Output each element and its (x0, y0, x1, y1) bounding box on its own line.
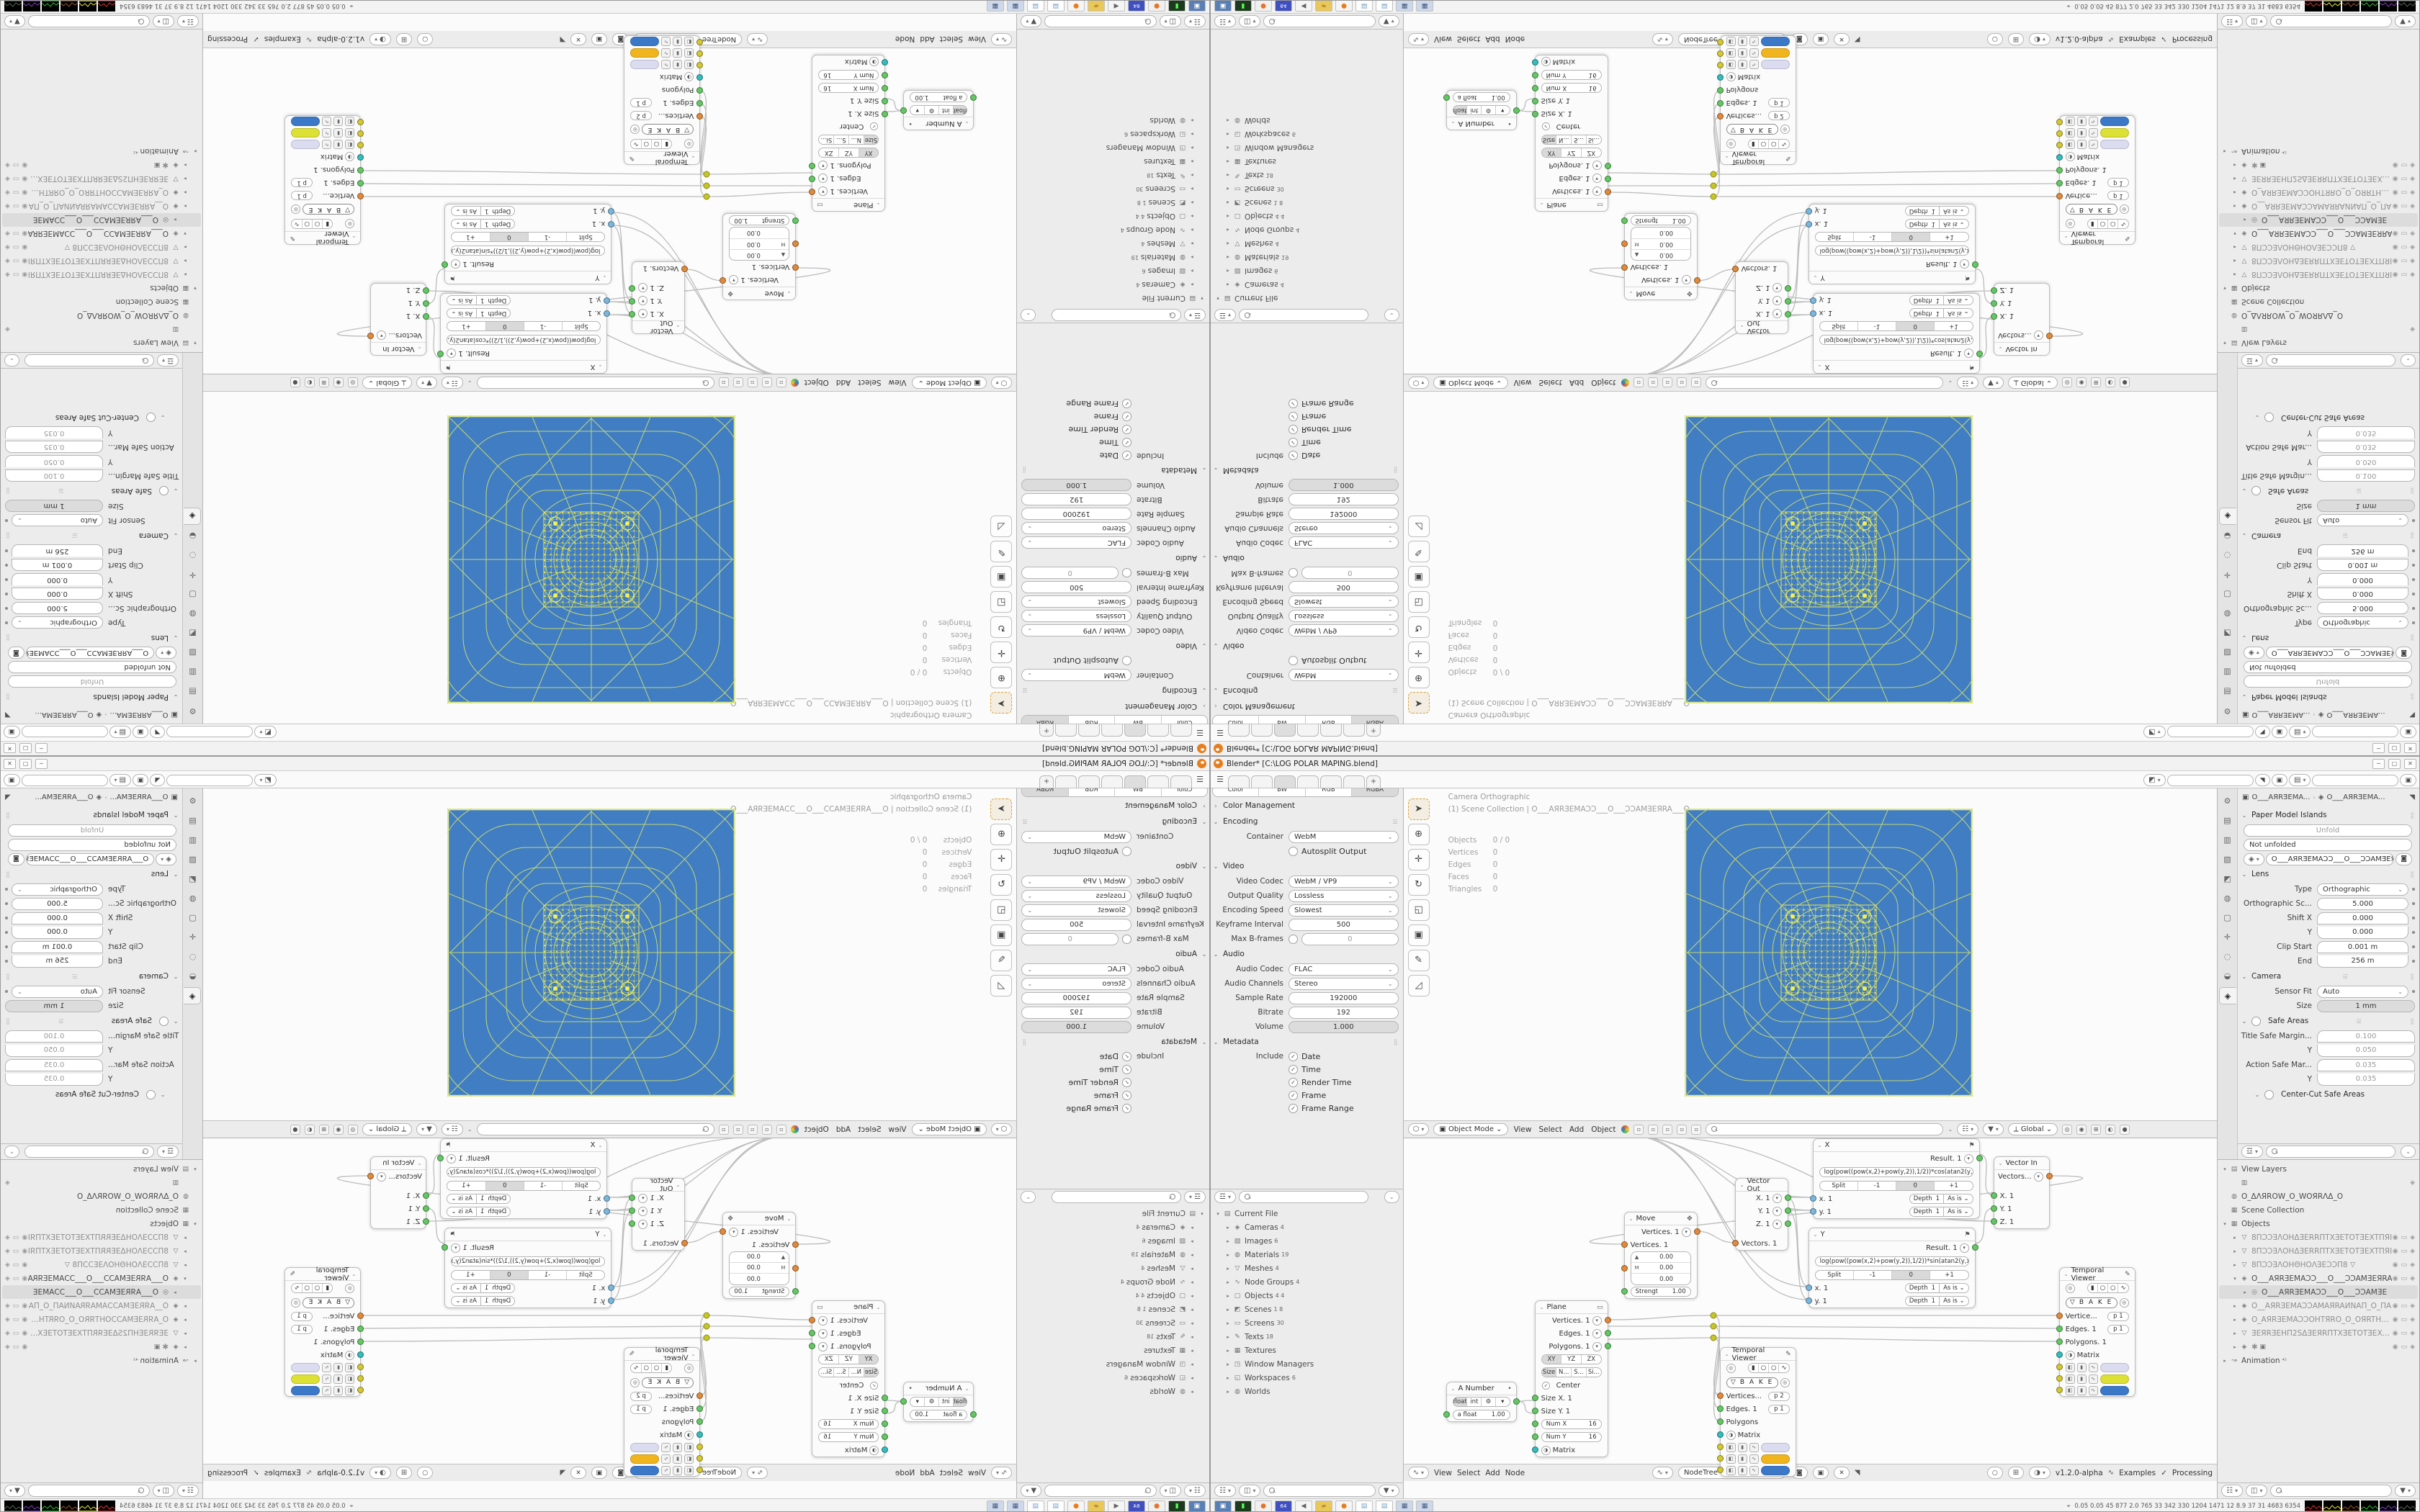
segment-button[interactable]: ▾ (1496, 1398, 1510, 1406)
filter-funnel-button[interactable]: ▼▾ (416, 1123, 437, 1135)
checkbox-frame-range[interactable]: ✓Frame Range (1021, 397, 1131, 410)
editor-type-button[interactable]: ◫▾ (1160, 15, 1181, 27)
copy-icon[interactable]: ▣ (1813, 1467, 1829, 1479)
filter-funnel-button[interactable]: ▼▾ (1983, 1123, 2004, 1135)
color-swatch[interactable] (630, 49, 659, 58)
checkbox-time[interactable]: ✓Time (1021, 1063, 1131, 1076)
taskbar-app-audio-player[interactable]: ◀ (1108, 1, 1125, 12)
hide-render-icon[interactable]: ◈ (5, 1330, 10, 1337)
dropdown-encoding-speed[interactable]: Slowest ⌄ (1021, 596, 1131, 608)
options-chevron[interactable]: ⌄ (4, 354, 19, 366)
outliner-row[interactable]: ▸▭Screens30 (1212, 1316, 1402, 1330)
color-depth-option[interactable]: RGBA (1352, 788, 1397, 796)
input-socket[interactable] (2056, 1313, 2063, 1319)
snap-proportional-icon[interactable]: ◎ (348, 1125, 358, 1135)
value-max-b-frames[interactable]: 0 (1301, 933, 1399, 945)
outliner-row[interactable]: ▸▽8ПƆƆƎΛOHΔƎERRПTXƎETOTƎEXTПЯI◉▭◈ (2, 1230, 201, 1244)
input-socket[interactable] (1621, 1288, 1628, 1295)
panel-header-paper-model-islands[interactable]: ⌄Paper Model Islands⣿ (5, 807, 179, 823)
socket-menu-button[interactable]: ▾ (377, 331, 386, 341)
taskbar-app-screen-capture[interactable]: ▣ (1188, 1500, 1206, 1512)
output-socket[interactable] (629, 1194, 635, 1201)
value-field[interactable]: Num X16 (1541, 83, 1602, 93)
formula-field[interactable]: log(pow((pow(x,2)+pow(y,2)),1/2))*sin(at… (1815, 1256, 1969, 1266)
workspace-tab[interactable] (1101, 724, 1123, 737)
fake-user-shield-icon[interactable]: ◙ (8, 853, 24, 865)
display-shape-icon[interactable]: ∿ (292, 1284, 301, 1292)
segment-button[interactable]: S... (1572, 135, 1587, 144)
value-clip-start[interactable]: 0.001 m (12, 941, 103, 953)
input-socket[interactable] (2056, 1375, 2063, 1382)
hide-viewport-icon[interactable]: ▭ (13, 1302, 19, 1310)
fake-user-shield-icon[interactable]: ◙ (8, 647, 24, 660)
output-socket[interactable] (809, 1330, 815, 1336)
outliner-row[interactable]: ▸◱Workspaces6 (1212, 1371, 1402, 1385)
search-input[interactable] (1263, 15, 1375, 27)
checkbox-frame[interactable]: ✓Frame (1289, 410, 1399, 423)
unfold-button[interactable]: Unfold (8, 676, 176, 688)
select-tool[interactable]: ➤ (990, 692, 1012, 714)
vector-out-node[interactable]: ⌄Vector OutX. 1▾Y. 1▾Z. 1▾Vectors. 1 (1735, 261, 1788, 334)
outliner-row[interactable]: ▸◈Cameras4 (1212, 1220, 1402, 1234)
properties-tab-physics[interactable]: ◌ (2219, 546, 2236, 564)
value-y[interactable]: 0.050 (2317, 1045, 2415, 1057)
breadcrumb-object[interactable]: O___AЯRƎEMA... (2251, 793, 2310, 801)
y-formula-node[interactable]: ⌄Y⚑Result. 1▾log(pow((pow(x,2)+pow(y,2))… (444, 204, 611, 284)
segment-button[interactable]: int (1467, 106, 1482, 114)
hide-render-icon[interactable]: ◈ (5, 203, 10, 210)
hide-viewport-icon[interactable]: ▭ (13, 258, 19, 265)
hide-render-icon[interactable]: ◈ (5, 176, 10, 183)
display-shape-icon[interactable]: ▮ (322, 1284, 332, 1292)
output-socket[interactable] (1694, 277, 1700, 284)
outliner-row[interactable]: ▸▽ƎEЯRƎEHП2SΔƎEЯRПTXƎETOTƎEXTПS◉▭◈ (2219, 172, 2418, 186)
node-editor[interactable]: ∿▾ViewSelectAddNode∿▾NodeTree◙▣✕◥○⊞◑▾v1.… (203, 1138, 1016, 1481)
camera-data-name-field[interactable]: O___AЯRƎEMAƆƆ___O___ƆƆAMƎEЯRA___O (2266, 853, 2395, 865)
visibility-icon[interactable]: ◎ (684, 1364, 694, 1373)
outliner-row[interactable]: ▸▽Meshes4 (1018, 237, 1208, 251)
output-socket[interactable] (1605, 1330, 1611, 1336)
properties-tab-modifiers[interactable]: ✛ (2219, 929, 2236, 946)
copy-icon[interactable]: ▣ (2272, 774, 2288, 786)
display-shape-icon[interactable]: ○ (651, 1364, 661, 1372)
filter-button[interactable]: ▼▾ (4, 1485, 25, 1497)
output-socket[interactable] (809, 176, 815, 182)
pin-icon[interactable]: ◥ (2409, 711, 2415, 719)
hide-eye-icon[interactable]: ◉ (2393, 1248, 2398, 1255)
camera-data-name-field[interactable]: O___AЯRƎEMAƆƆ___O___ƆƆAMƎEЯRA___O (26, 853, 155, 865)
socket-menu-button[interactable]: ▾ (818, 1329, 828, 1338)
hide-render-icon[interactable]: ◈ (5, 1316, 10, 1323)
outliner-row[interactable]: ▸◍Materials19 (1212, 1248, 1402, 1261)
annotate-tool[interactable]: ✎ (990, 541, 1012, 562)
panel-header-center-cut-safe-areas[interactable]: ⌄Center-Cut Safe Areas (2241, 410, 2415, 426)
render-camera-icon[interactable]: ◈ (2410, 326, 2415, 333)
taskbar-app-notepad-1[interactable]: ▤ (1047, 1500, 1065, 1512)
search-input[interactable] (1706, 377, 1943, 389)
shading-icon[interactable]: ◑▾ (2029, 33, 2051, 45)
search-input[interactable] (2266, 1146, 2396, 1158)
properties-tab-modifiers[interactable]: ✛ (184, 566, 202, 583)
properties-tab-constraints[interactable]: ◒ (2219, 968, 2236, 985)
menu-select[interactable]: Select (1457, 1469, 1480, 1477)
hide-viewport-icon[interactable]: ▭ (13, 271, 19, 279)
hide-render-icon[interactable]: ◈ (2410, 1248, 2415, 1255)
hide-viewport-icon[interactable]: ▭ (13, 189, 19, 197)
segment-button[interactable]: 0 (485, 322, 524, 330)
outliner-row[interactable]: ▸◈O_AЯRƎEMAƆƆOHTЯRO_O_OЯRTHOƆƆI◉▭◈ (2219, 1313, 2418, 1326)
display-shape-icon[interactable]: ○ (2108, 1284, 2118, 1292)
segment-button[interactable]: 0 (485, 1182, 524, 1190)
outliner-row[interactable]: ▸↝Animation⁴² (2, 145, 201, 158)
socket-menu-button[interactable]: ▾ (1773, 284, 1782, 293)
new-view-layer-icon[interactable]: ▣ (2400, 726, 2416, 738)
snap-icon[interactable]: ○ (1987, 1467, 2003, 1479)
hide-eye-icon[interactable]: ◉ (22, 176, 27, 183)
socket-menu-button[interactable]: ▾ (1682, 276, 1691, 285)
annotate-tool[interactable]: ✎ (990, 950, 1012, 971)
orientation-dropdown[interactable]: ⟂ Global ⌄ (362, 1123, 412, 1135)
checkbox-label[interactable]: Center (1556, 123, 1581, 131)
formula-field[interactable]: log(pow((pow(x,2)+pow(y,2)),1/2))*cos(at… (1819, 335, 1973, 345)
properties-tab-output[interactable]: ▥ (2219, 663, 2236, 680)
display-shape-icon[interactable]: ▮ (1749, 140, 1759, 148)
outliner-row[interactable]: ▾◈O___AЯRƎEMAƆƆ___O___ƆƆAMƎEЯRA◉▭◈ (2219, 227, 2418, 240)
snap-proportional-icon[interactable]: ● (2120, 1125, 2130, 1135)
menu-select[interactable]: Select (1537, 1125, 1563, 1134)
display-mode-button[interactable]: ☷▾ (2221, 15, 2243, 27)
menu-view[interactable]: View (968, 1469, 986, 1477)
color-swatch[interactable] (630, 1454, 659, 1464)
taskbar-app-calculator-1[interactable]: ▦ (1396, 1500, 1413, 1512)
taskbar-app-firefox[interactable]: ● (1255, 1, 1272, 12)
hide-render-icon[interactable]: ◈ (5, 1344, 10, 1351)
dropdown-audio-channels[interactable]: Stereo ⌄ (1021, 978, 1131, 990)
taskbar-app-screen-recorder[interactable]: ▮ (1168, 1, 1186, 12)
segment-button[interactable]: ⚙ (1482, 1398, 1496, 1406)
value-field[interactable]: Strengt1.00 (1631, 1287, 1691, 1297)
filter-funnel-button[interactable]: ▼▾ (416, 377, 437, 389)
overlay-list-button[interactable]: ☷▾ (442, 377, 463, 389)
view-layer-selector[interactable]: ▤▾ ▣ (4, 774, 131, 786)
scene-selector[interactable]: ◩▾ ◥ ▣ (133, 774, 277, 786)
outliner-row[interactable]: ▸◍Worlds (1212, 1385, 1402, 1398)
value-max-b-frames[interactable]: 0 (1021, 567, 1119, 580)
hide-eye-icon[interactable]: ◉ (22, 271, 27, 279)
taskbar-app-calculator-2[interactable]: ▦ (1416, 1500, 1433, 1512)
output-socket[interactable] (720, 1228, 726, 1235)
hide-eye-icon[interactable]: ◉ (2393, 1261, 2398, 1269)
segment-button[interactable]: ⚙ (1482, 106, 1496, 114)
taskbar-app-calculator-1[interactable]: ▦ (1007, 1, 1024, 12)
outliner-row[interactable]: ▸∿Node Groups4 (1212, 1275, 1402, 1289)
value-field[interactable]: a float1.00 (910, 1410, 967, 1420)
minimize-button[interactable]: ─ (35, 759, 48, 769)
output-socket[interactable] (629, 1220, 635, 1227)
camera-data-icon[interactable]: ◈▾ (156, 647, 176, 660)
outliner-row[interactable]: ▸◈O_AЯRƎEMAƆƆOHTЯRO_O_OЯRTHOƆƆI◉▭◈ (2, 1313, 201, 1326)
outliner-row[interactable]: ▸▽Meshes4 (1212, 237, 1402, 251)
properties-tab-render[interactable]: ▤ (184, 683, 202, 700)
input-socket[interactable] (1810, 310, 1816, 317)
color-depth-option[interactable]: RGBA (1022, 716, 1067, 724)
dropdown-video-codec[interactable]: WebM / VP9 ⌄ (1289, 876, 1399, 888)
unfold-button[interactable]: Unfold (2244, 824, 2412, 837)
new-view-layer-icon[interactable]: ▣ (2400, 774, 2416, 786)
panel-header-metadata[interactable]: ⌄Metadata⣿ (1212, 1034, 1399, 1050)
segment-button[interactable]: -1 (1858, 1182, 1896, 1190)
panel-header-paper-model-islands[interactable]: ⌄Paper Model Islands⣿ (2241, 689, 2415, 705)
socket-menu-button[interactable]: ▾ (1960, 1243, 1969, 1253)
panel-header-audio[interactable]: ⌄Audio (1021, 550, 1208, 566)
select-mode-icon[interactable]: ▫ (1633, 1125, 1644, 1135)
maximize-button[interactable]: ▢ (2388, 759, 2401, 769)
color-swatch[interactable] (630, 37, 659, 47)
outliner-row[interactable]: ▥◈ (2, 1176, 201, 1189)
transform-tool[interactable]: ▣ (1408, 566, 1430, 588)
outliner-row[interactable]: ▾▦Objects (2219, 282, 2418, 295)
hide-render-icon[interactable]: ◈ (2410, 1261, 2415, 1269)
mode-dropdown[interactable]: ▣ Object Mode ⌄ (1433, 377, 1507, 389)
taskbar-app-screen-recorder[interactable]: ▮ (1234, 1, 1252, 12)
search-input[interactable] (477, 377, 714, 389)
color-swatch[interactable] (2100, 129, 2129, 138)
color-depth-option[interactable]: Color (1161, 716, 1207, 724)
chevron-down-icon[interactable]: ⌄ (467, 379, 472, 386)
display-mode-button[interactable]: ☷▾ (1184, 1485, 1206, 1497)
shading-icon[interactable]: ◑▾ (369, 1467, 391, 1479)
dropdown-output-quality[interactable]: Lossless ⌄ (1289, 890, 1399, 902)
outliner-row[interactable]: ▸▽8ПƆƆƎΛOHΔƎERRПTXƎETOTƎEXTПЯI◉▭◈ (2, 254, 201, 268)
checkbox-time[interactable]: ✓Time (1289, 436, 1399, 449)
output-socket[interactable] (629, 311, 635, 318)
input-socket[interactable] (2056, 154, 2063, 161)
properties-tab-object[interactable]: ▢ (184, 585, 202, 603)
temporal-viewer-node-center[interactable]: ⌄Temporal Viewer✎◎ ▮○○∿▽B A K E◎Vertices… (624, 1347, 700, 1477)
input-socket[interactable] (1806, 1284, 1812, 1291)
pin-icon[interactable]: ◥ (151, 774, 166, 786)
value-field[interactable]: Num Y16 (818, 1432, 879, 1442)
overlay-icon[interactable]: ⊞ (396, 1467, 412, 1479)
outliner-row[interactable]: ▸▽8ПƆƆƎΛOHΔƎERRПTXƎETOTƎEXTПЯI◉▭◈ (2, 1244, 201, 1258)
dropdown-type[interactable]: Orthographic ⌄ (12, 617, 103, 629)
outliner-row[interactable]: ▸◎O___AЯRƎEMAƆƆ___O___ƆƆAMƎE (2219, 1285, 2418, 1299)
outliner-row[interactable]: ▥◈ (2, 323, 201, 336)
hide-eye-icon[interactable]: ◉ (22, 1261, 27, 1269)
node-editor[interactable]: ∿▾ViewSelectAddNode∿▾NodeTree◙▣✕◥○⊞◑▾v1.… (203, 31, 1016, 374)
color-swatch[interactable] (630, 1443, 659, 1452)
value-keyframe-interval[interactable]: 500 (1021, 582, 1131, 594)
outliner-row[interactable]: ▸◩Scenes1 8 (1212, 196, 1402, 210)
color-depth-option[interactable]: Color (1161, 788, 1207, 796)
outliner-row[interactable]: ▾▤View Layers (2, 1162, 201, 1176)
workspace-tab[interactable] (1055, 724, 1077, 737)
socket-menu-button[interactable]: ▾ (1682, 1228, 1691, 1237)
select-mode-icon[interactable]: ▫ (762, 378, 772, 388)
panel-header-center-cut-safe-areas[interactable]: ⌄Center-Cut Safe Areas (5, 410, 179, 426)
dropdown-type[interactable]: Orthographic ⌄ (12, 883, 103, 896)
pin-icon[interactable]: ◥ (1855, 1469, 1860, 1477)
display-shape-icon[interactable]: ○ (641, 1364, 651, 1372)
checkbox-frame[interactable]: ✓Frame (1021, 410, 1131, 423)
checkbox-render-time[interactable]: ✓Render Time (1289, 1076, 1399, 1089)
editor-type-button[interactable]: ☲▾ (1184, 1191, 1206, 1203)
pin-icon[interactable]: ◥ (5, 711, 11, 719)
color-swatch[interactable] (2100, 117, 2129, 127)
vector-in-node[interactable]: ⌄Vector InVectors...▾X. 1Y. 1Z. 1 (1994, 1156, 2050, 1229)
options-chevron[interactable]: ⌄ (1021, 309, 1036, 321)
move-node[interactable]: ⌄Move✥Vertices. 1▾Vertices. 1▲0.00M0.000… (722, 213, 796, 300)
segment-button[interactable]: Si... (819, 135, 833, 144)
segment-button[interactable]: Split (1816, 1271, 1854, 1279)
dropdown-video-codec[interactable]: WebM / VP9 ⌄ (1021, 876, 1131, 888)
snap-proportional-icon[interactable]: ◉ (333, 378, 344, 388)
options-chevron[interactable]: ⌄ (1384, 309, 1399, 321)
output-socket[interactable] (437, 351, 444, 357)
vector-in-node[interactable]: ⌄Vector InVectors...▾X. 1Y. 1Z. 1 (370, 283, 426, 356)
pin-icon[interactable]: ◥ (1855, 35, 1860, 43)
properties-tab-view-layer[interactable]: ▧ (184, 851, 202, 868)
input-socket[interactable] (1717, 1444, 1724, 1450)
socket-menu-button[interactable]: ▾ (729, 276, 738, 285)
input-socket[interactable] (2056, 119, 2063, 125)
color-swatch[interactable] (1761, 60, 1790, 70)
breadcrumb-data[interactable]: O___AЯRƎEMA... (2326, 711, 2385, 719)
outliner-row[interactable]: ▾▤Current File (1212, 292, 1402, 305)
input-socket[interactable] (2056, 130, 2063, 137)
hide-viewport-icon[interactable]: ▭ (13, 1316, 19, 1323)
render-camera-icon[interactable]: ◈ (5, 1179, 10, 1187)
maximize-button[interactable]: ▢ (19, 759, 32, 769)
outliner-row[interactable]: ▸▽ƎEЯRƎEHП2SΔƎEЯRПTXƎETOTƎEXTПS◉▭◈ (2219, 1326, 2418, 1340)
checkbox-render-time[interactable]: ✓Render Time (1021, 1076, 1131, 1089)
visibility-icon[interactable]: ◎ (2066, 1284, 2075, 1293)
unlink-icon[interactable]: ✕ (1834, 33, 1850, 45)
pin-icon[interactable]: ◥ (2409, 793, 2415, 801)
hide-eye-icon[interactable]: ◉ (22, 1275, 27, 1282)
color-swatch[interactable] (291, 1363, 320, 1372)
outliner-row[interactable]: ▸◍Materials19 (1018, 1248, 1208, 1261)
outliner-row[interactable]: ▸∿Node Groups4 (1018, 1275, 1208, 1289)
socket-menu-button[interactable]: ▾ (638, 284, 647, 293)
output-socket[interactable] (1605, 1343, 1611, 1349)
bake-button[interactable]: ▽B A K E (1726, 125, 1778, 135)
hide-eye-icon[interactable]: ◉ (22, 1330, 27, 1337)
select-mode-icon[interactable]: ▫ (719, 378, 729, 388)
output-socket[interactable] (367, 1173, 374, 1179)
outliner-row[interactable]: ▸▭Screens30 (1018, 1316, 1208, 1330)
taskbar-app-calculator-1[interactable]: ▦ (1396, 1, 1413, 12)
snap-proportional-icon[interactable]: ◎ (2062, 1125, 2072, 1135)
panel-header-paper-model-islands[interactable]: ⌄Paper Model Islands⣿ (5, 689, 179, 705)
color-swatch[interactable] (2100, 1374, 2129, 1384)
node-editor[interactable]: ∿▾ViewSelectAddNode∿▾NodeTree◙▣✕◥○⊞◑▾v1.… (1404, 1138, 2217, 1481)
menu-select[interactable]: Select (940, 35, 963, 44)
color-depth-option[interactable]: BW (1114, 788, 1160, 796)
move-node[interactable]: ⌄Move✥Vertices. 1▾Vertices. 1▲0.00M0.000… (1624, 1212, 1698, 1299)
outliner-row[interactable]: ▸▢Objects4 4 (1018, 1289, 1208, 1302)
socket-menu-button[interactable]: ▾ (638, 310, 647, 319)
outliner-row[interactable]: ▸◩Scenes1 8 (1212, 1302, 1402, 1316)
input-socket[interactable] (1717, 50, 1724, 57)
close-button[interactable]: ✕ (2404, 759, 2416, 769)
hide-render-icon[interactable]: ◈ (5, 258, 10, 265)
move-node[interactable]: ⌄Move✥Vertices. 1▾Vertices. 1▲0.00M0.000… (1624, 213, 1698, 300)
dropdown-type[interactable]: Orthographic ⌄ (2317, 617, 2408, 629)
segment-button[interactable]: ZX (1582, 1355, 1601, 1364)
taskbar-app-folder[interactable]: ▰ (1088, 1500, 1105, 1512)
checkbox-label[interactable]: Autosplit Output (1301, 657, 1366, 666)
hide-viewport-icon[interactable]: ▭ (13, 1344, 19, 1351)
bake-button[interactable]: ▽B A K E (2066, 204, 2117, 215)
input-socket[interactable] (1717, 1418, 1724, 1425)
copy-icon[interactable]: ▣ (1813, 33, 1829, 45)
add-workspace-tab[interactable]: + (1039, 775, 1054, 788)
fake-user-shield-icon[interactable]: ◙ (2396, 647, 2412, 660)
overlay-list-button[interactable]: ☷▾ (1957, 377, 1978, 389)
socket-menu-button[interactable]: ▾ (818, 1316, 828, 1326)
outliner-row[interactable]: ◍O_ΔΛЯROW_O_WOЯRΛΔ_O (2, 1189, 201, 1203)
socket-menu-button[interactable]: ▾ (638, 1207, 647, 1216)
panel-header-video[interactable]: ⌄Video (1212, 638, 1399, 654)
scene-name-field[interactable] (2167, 726, 2254, 738)
menu-node[interactable]: Node (895, 1469, 915, 1477)
socket-menu-button[interactable]: ▾ (1964, 349, 1973, 359)
reset-icon[interactable]: ◎ (2120, 205, 2129, 215)
value-keyframe-interval[interactable]: 500 (1289, 919, 1399, 931)
outliner-row[interactable]: ▸▽ƎEЯRƎEHП2SΔƎEЯRПTXƎETOTƎEXTПS◉▭◈ (2, 172, 201, 186)
checkbox-date[interactable]: ✓Date (1289, 1050, 1399, 1063)
search-input[interactable] (1239, 309, 1368, 321)
value-field[interactable]: a float1.00 (1453, 92, 1510, 102)
annotate-tool[interactable]: ✎ (1408, 541, 1430, 562)
panel-header-lens[interactable]: ⌄Lens⣿ (5, 866, 179, 882)
hide-eye-icon[interactable]: ◉ (22, 1234, 27, 1241)
hide-viewport-icon[interactable]: ▭ (2401, 1344, 2408, 1351)
segment-button[interactable]: ▾ (910, 106, 924, 114)
copy-icon[interactable]: ▣ (591, 33, 608, 45)
close-button[interactable]: ✕ (2404, 744, 2416, 754)
panel-header-paper-model-islands[interactable]: ⌄Paper Model Islands⣿ (2241, 807, 2415, 823)
fake-user-shield-icon[interactable]: ◙ (2396, 853, 2412, 865)
editor-type-button[interactable]: ☲▾ (157, 1146, 179, 1158)
socket-menu-button[interactable]: ▾ (1592, 174, 1602, 184)
socket-menu-button[interactable]: ▾ (1773, 1194, 1782, 1203)
outliner-row[interactable]: ▸▦Textures (1212, 155, 1402, 168)
outliner-row[interactable]: ▸↝Animation⁴² (2219, 145, 2418, 158)
unfold-button[interactable]: Unfold (8, 824, 176, 837)
segment-button[interactable]: S... (833, 1368, 848, 1377)
display-shape-icon[interactable]: ∿ (2118, 1284, 2128, 1292)
value-sample-rate[interactable]: 192000 (1289, 992, 1399, 1004)
display-shape-icon[interactable]: ∿ (292, 220, 301, 228)
mode-dropdown[interactable]: ▣ Object Mode ⌄ (1433, 1123, 1507, 1135)
value-clip-start[interactable]: 0.001 m (2317, 559, 2408, 572)
hide-eye-icon[interactable]: ◉ (2393, 1344, 2398, 1351)
value-clip-start[interactable]: 0.001 m (2317, 941, 2408, 953)
new-view-layer-icon[interactable]: ▣ (4, 774, 20, 786)
taskbar-app-screen-capture[interactable]: ▣ (1214, 1, 1232, 12)
unlink-icon[interactable]: ✕ (570, 1467, 586, 1479)
hide-viewport-icon[interactable]: ▭ (13, 1275, 19, 1282)
hide-eye-icon[interactable]: ◉ (22, 258, 27, 265)
transform-tool[interactable]: ▣ (990, 566, 1012, 588)
menu-select[interactable]: Select (856, 379, 882, 387)
value-field[interactable]: Num Y16 (1541, 1432, 1602, 1442)
checkbox-date[interactable]: ✓Date (1021, 1050, 1131, 1063)
segment-button[interactable]: N... (1556, 135, 1572, 144)
input-socket[interactable] (1991, 300, 1997, 307)
